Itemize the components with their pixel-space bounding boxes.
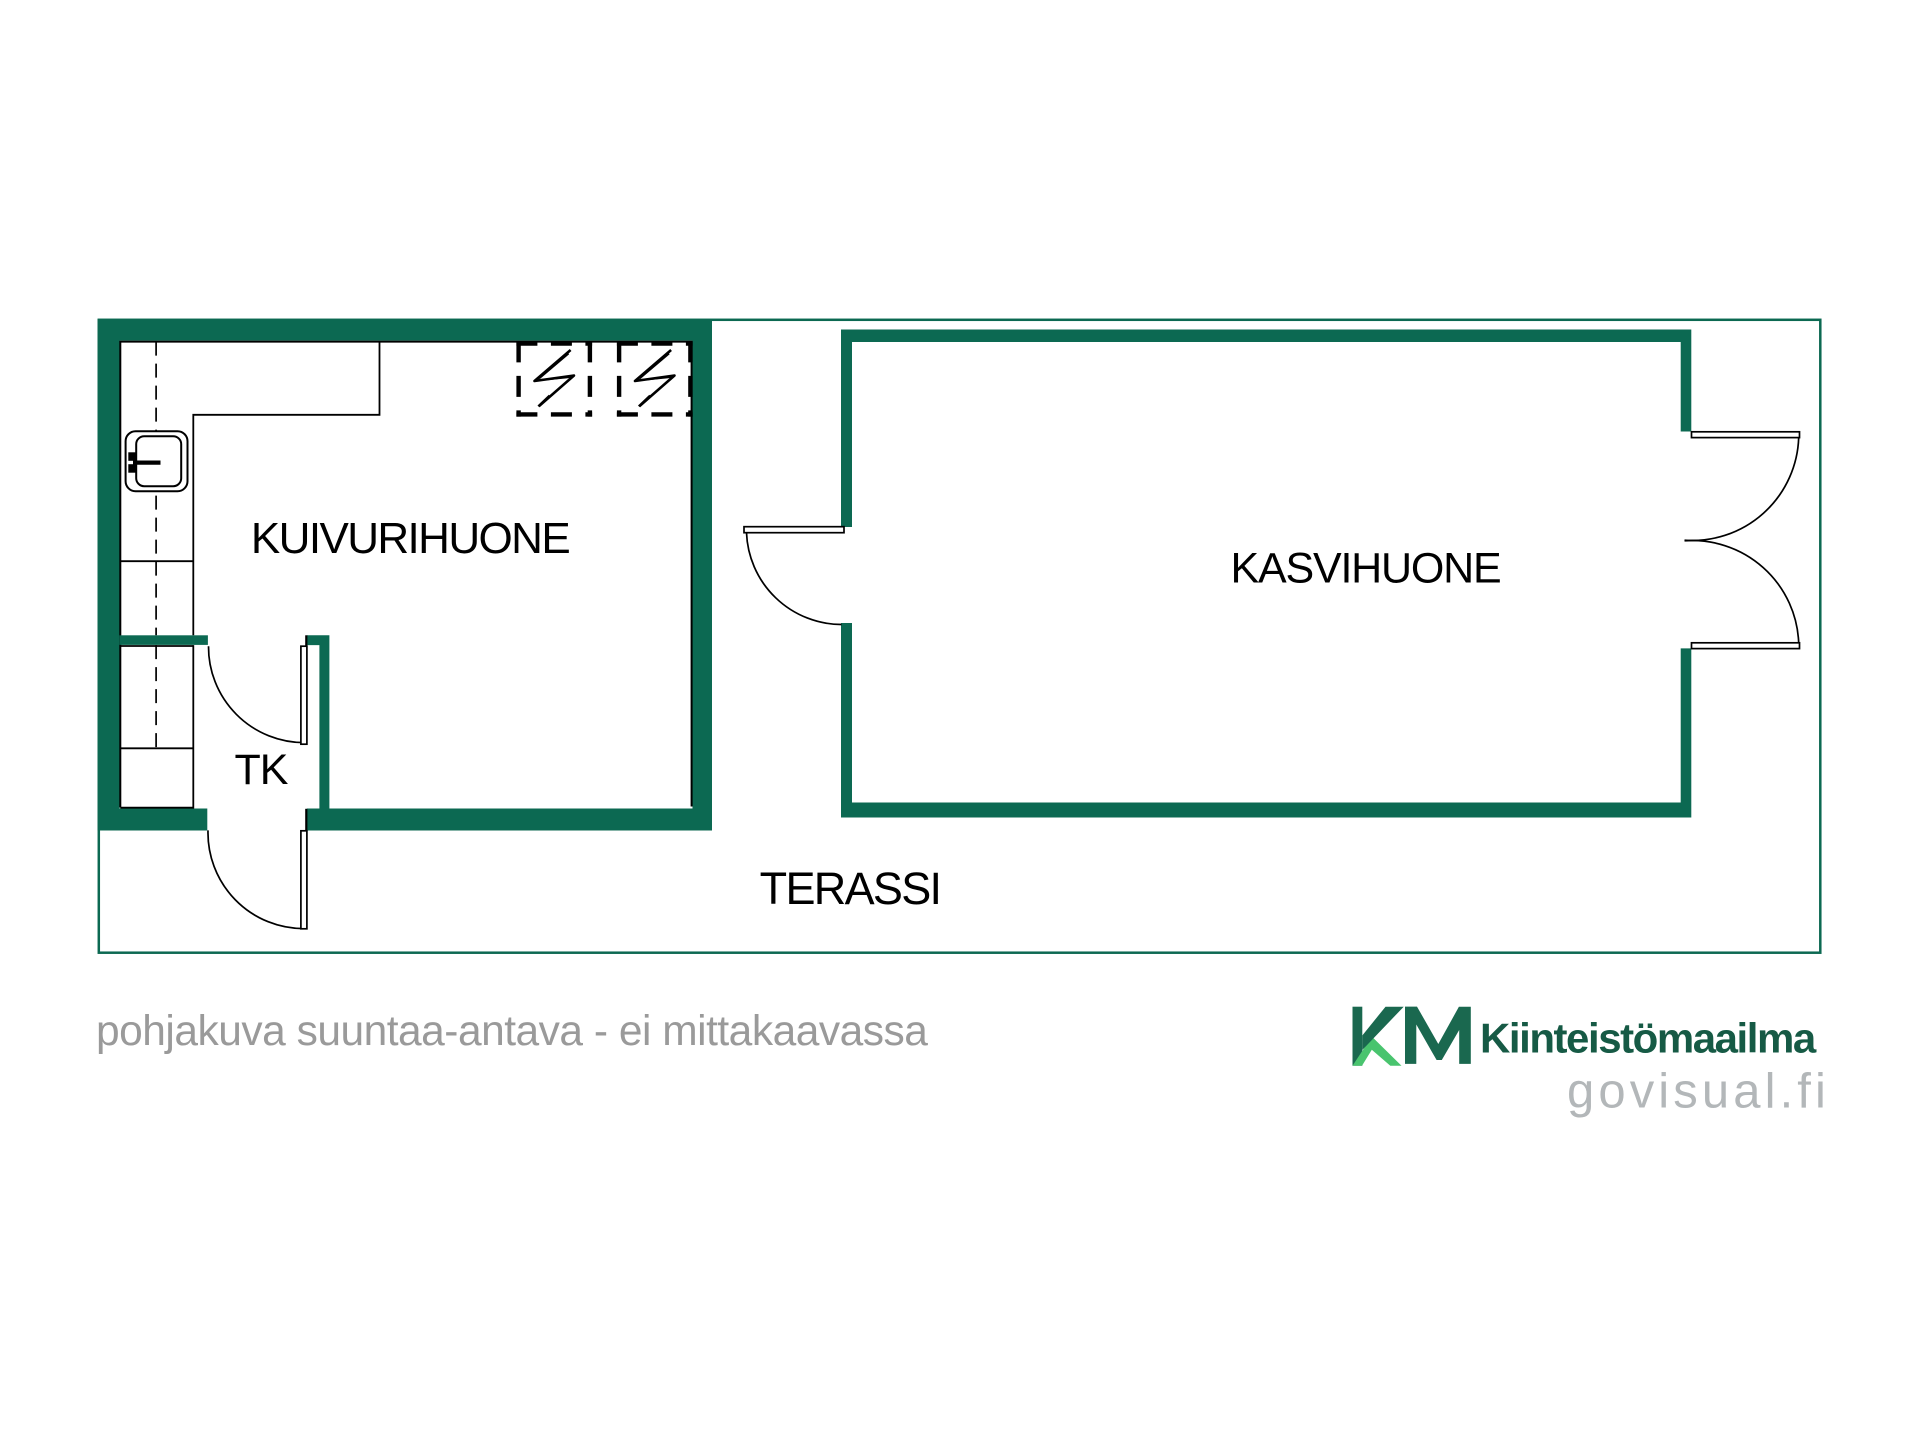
svg-text:KASVIHUONE: KASVIHUONE [1231,545,1501,593]
svg-text:Kiinteistömaailma: Kiinteistömaailma [1480,1015,1817,1062]
svg-text:KUIVURIHUONE: KUIVURIHUONE [251,514,569,563]
svg-text:govisual.fi: govisual.fi [1567,1065,1830,1119]
svg-text:TERASSI: TERASSI [760,863,941,914]
svg-text:TK: TK [235,746,289,794]
svg-text:pohjakuva suuntaa-antava - ei: pohjakuva suuntaa-antava - ei mittakaava… [96,1008,928,1055]
